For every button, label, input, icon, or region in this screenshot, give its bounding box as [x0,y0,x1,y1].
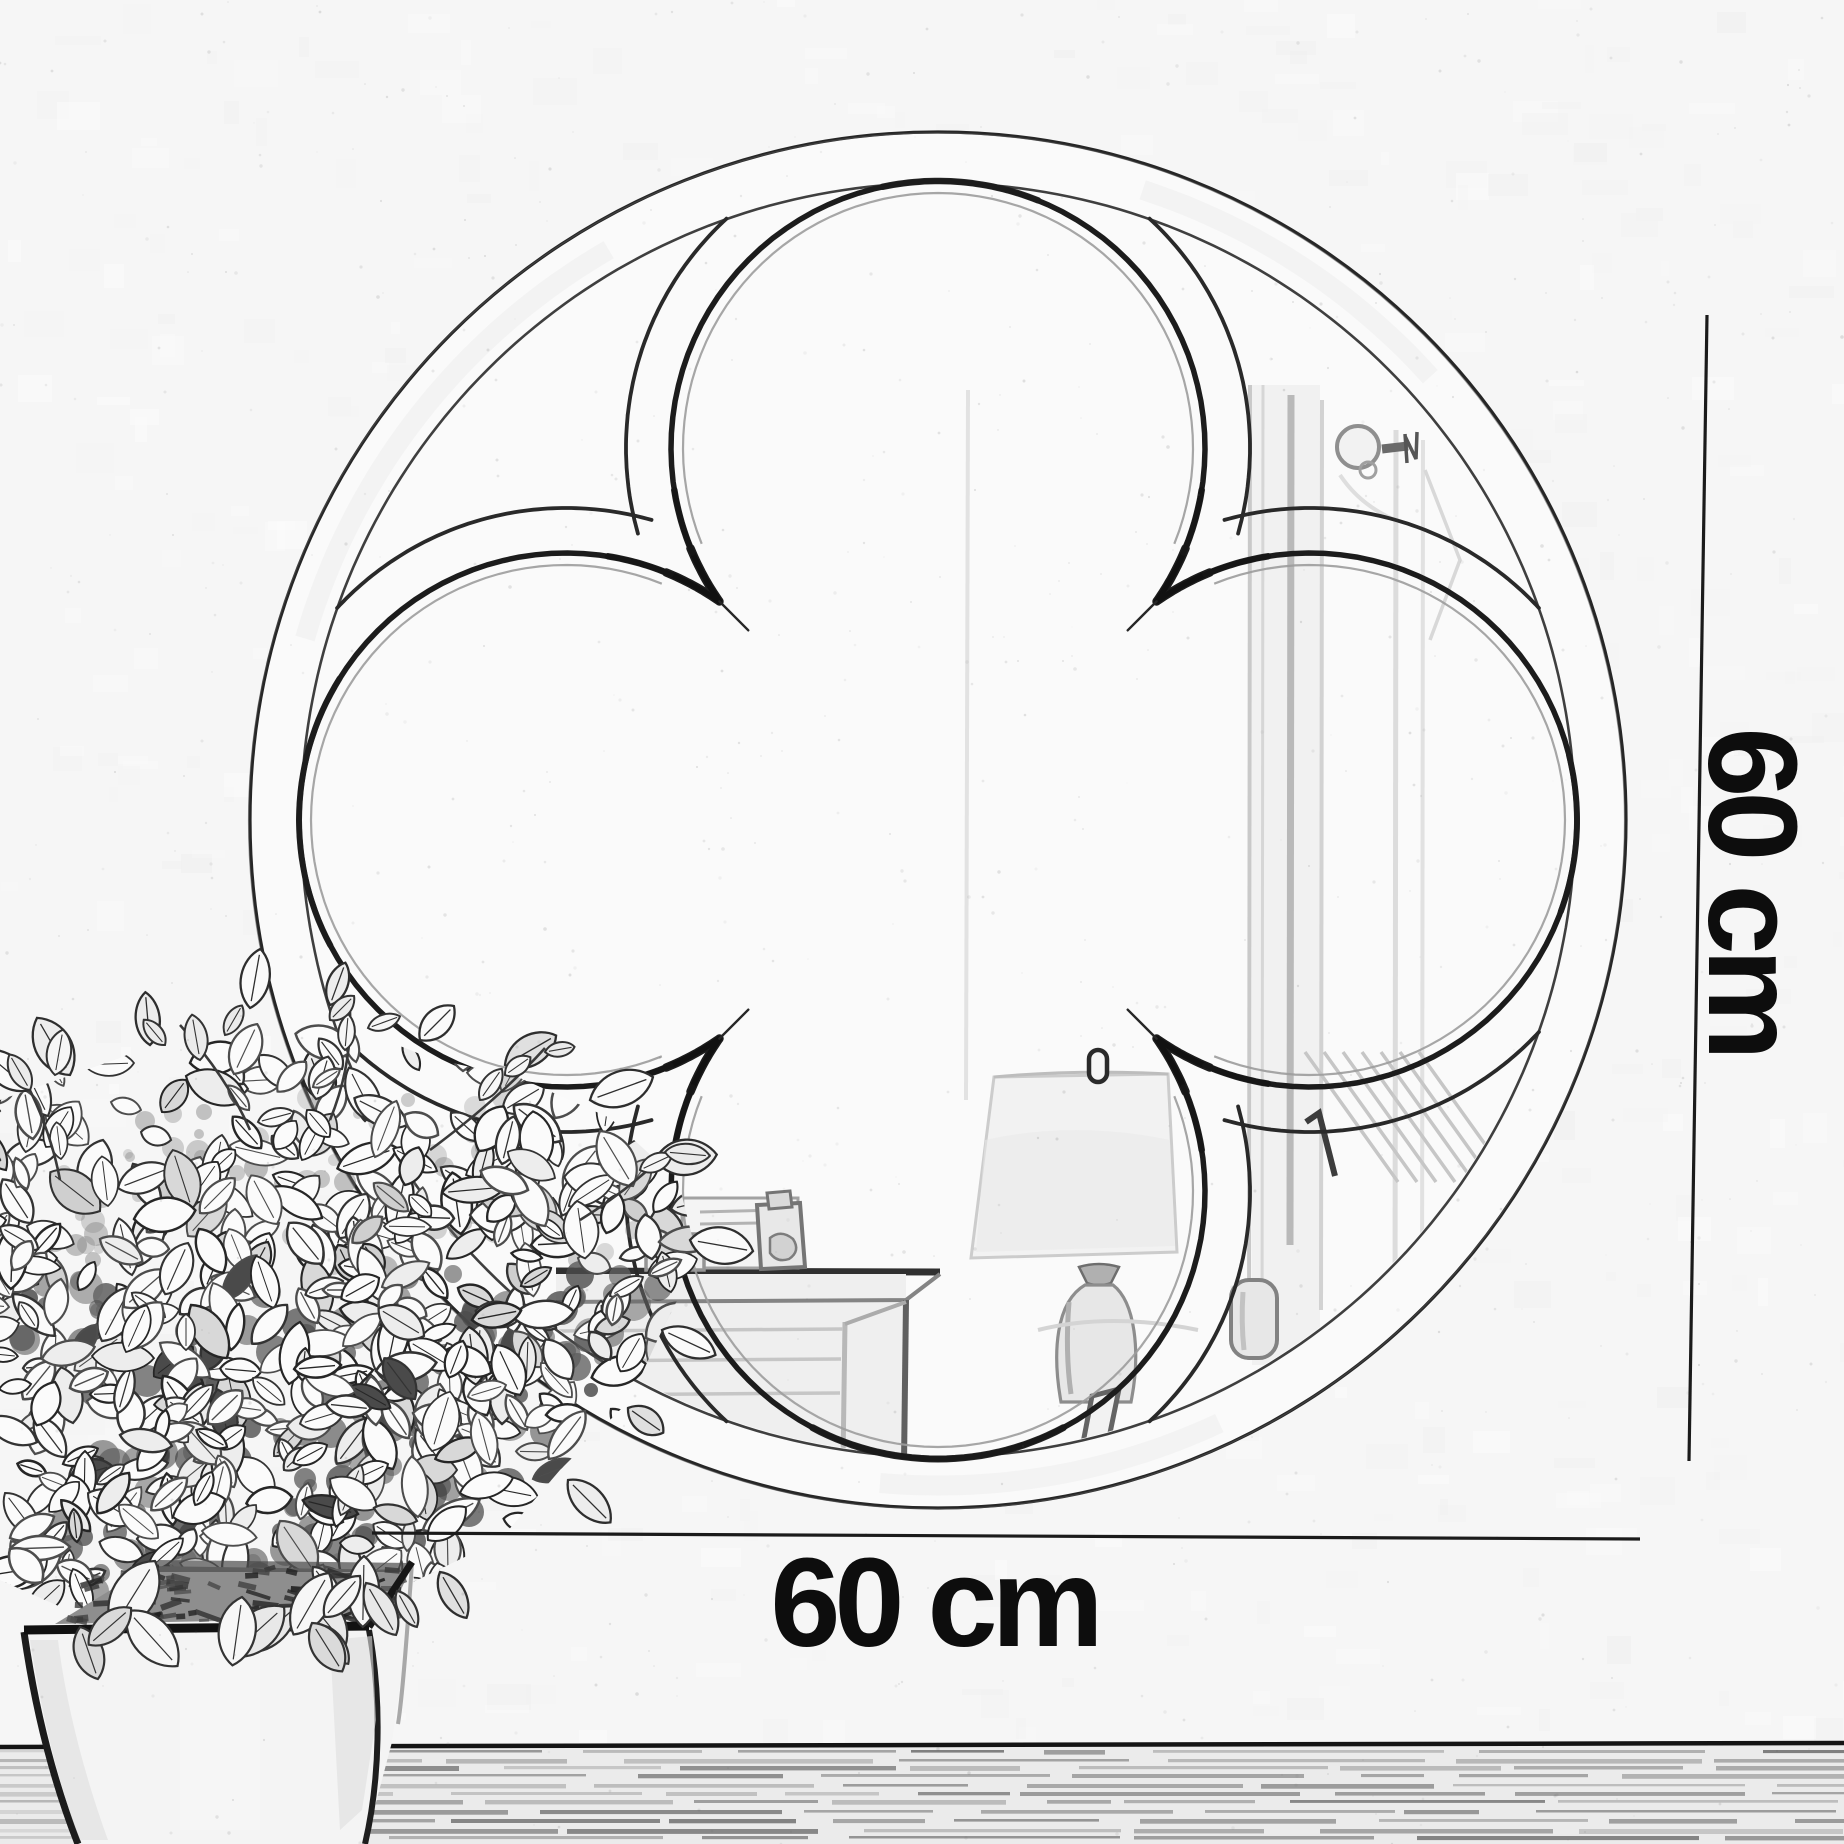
svg-text:60 cm: 60 cm [770,1532,1097,1673]
svg-text:60 cm: 60 cm [1682,727,1823,1054]
